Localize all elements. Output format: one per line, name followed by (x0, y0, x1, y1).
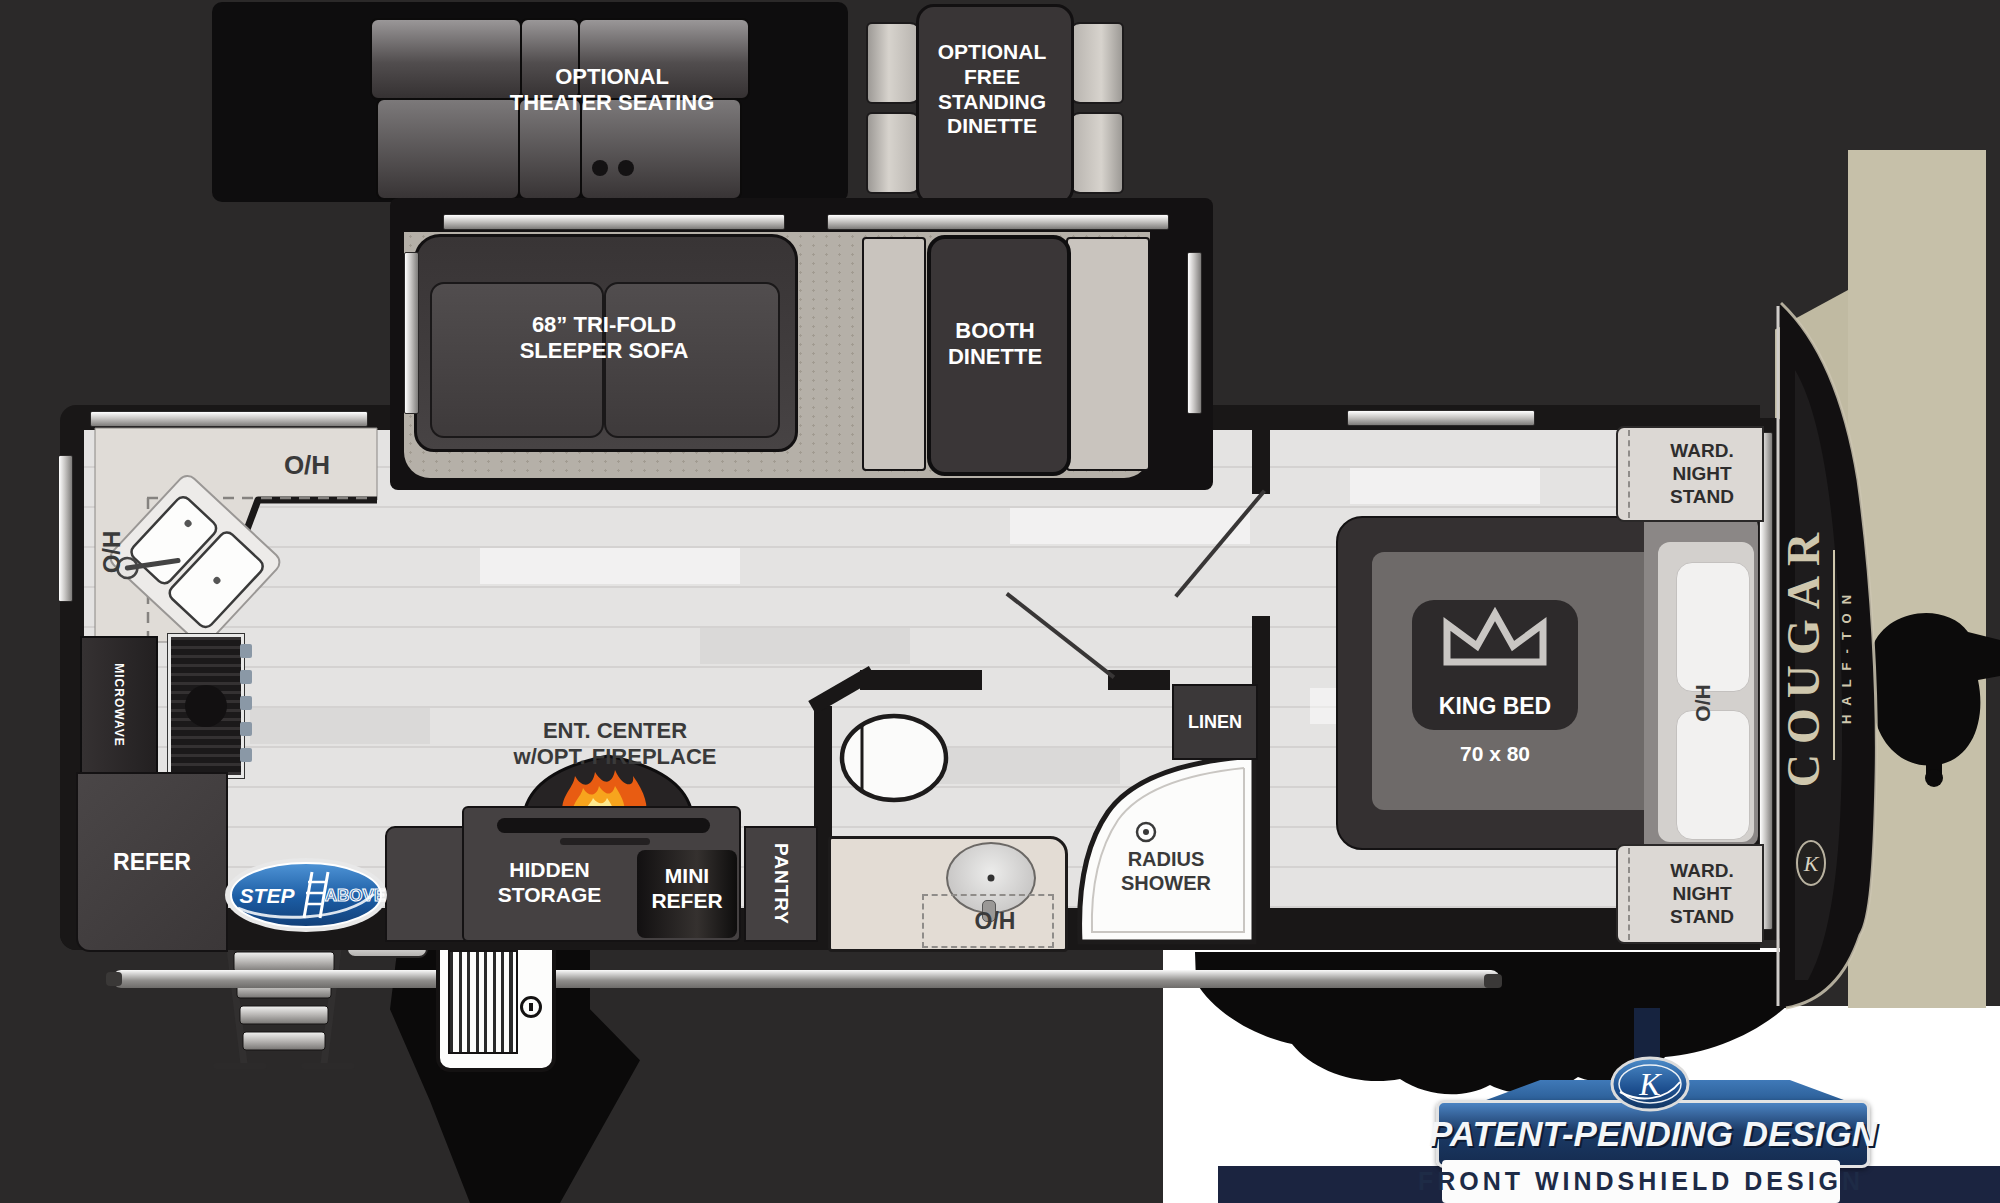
floor-plank-patch (1350, 468, 1540, 504)
vent-grill-icon (448, 950, 518, 1054)
dinette-chair (866, 22, 922, 104)
linen-closet: LINEN (1172, 684, 1258, 760)
floorplan-canvas: 68” TRI-FOLD SLEEPER SOFA BOOTH DINETTE … (0, 0, 2000, 1203)
sofa-label: 68” TRI-FOLD SLEEPER SOFA (424, 312, 784, 364)
mini-refer-label: MINI REFER (637, 864, 737, 914)
window-slide-left-side (404, 252, 419, 414)
keystone-logo-icon: K (1608, 1054, 1692, 1114)
toilet-icon (832, 708, 956, 808)
patent-banner-label: PATENT-PENDING DESIGN (1429, 1114, 1877, 1154)
dinette-chair (1068, 112, 1124, 194)
range-knobs (240, 644, 252, 762)
vent-lock-icon (520, 996, 542, 1018)
window-rear (58, 455, 73, 602)
keystone-emblem-icon: K (1793, 838, 1829, 888)
linen-label: LINEN (1188, 712, 1242, 733)
slide-rail-cap (106, 972, 122, 986)
floor-plank-patch (700, 628, 910, 664)
window-slide-right-top (827, 214, 1169, 230)
microwave-label: MICROWAVE (112, 663, 126, 746)
bath-overhead-label: O/H (950, 908, 1040, 935)
windshield-banner: FRONT WINDSHIELD DESIGN (1442, 1160, 1840, 1203)
booth-label: BOOTH DINETTE (927, 318, 1063, 370)
pantry-label: PANTRY (770, 843, 792, 925)
kitchen-overhead-label: O/H (252, 450, 362, 481)
theater-label: OPTIONAL THEATER SEATING (442, 64, 782, 116)
range-cooktop (168, 634, 244, 778)
windshield-banner-label: FRONT WINDSHIELD DESIGN (1418, 1167, 1864, 1196)
refrigerator-label: REFER (113, 849, 191, 876)
step-above-logo: STEP ABOVE (222, 856, 390, 934)
slide-rail-bar (112, 970, 1500, 988)
cup-holder-icon (592, 160, 608, 176)
dinette-chair (1068, 22, 1124, 104)
pantry-cabinet: PANTRY (744, 826, 818, 942)
burner-icon (185, 685, 227, 727)
ent-center-label: ENT. CENTER w/OPT. FIREPLACE (470, 718, 760, 770)
furnace-vent (436, 936, 556, 1072)
bath-wall-stub (1108, 670, 1170, 690)
kitchen-overhead-left-label: O/H (98, 502, 126, 602)
window-bedroom (1347, 410, 1535, 426)
bed-size-label: 70 x 80 (1412, 742, 1578, 767)
ent-cabinet-left (385, 826, 466, 942)
refrigerator: REFER (76, 772, 228, 952)
radius-shower (1068, 746, 1258, 948)
dinette-label: OPTIONAL FREE STANDING DINETTE (916, 40, 1068, 139)
cougar-trim-label: HALF-TON (1839, 586, 1854, 724)
booth-seat-left (862, 237, 926, 471)
window-kitchen (90, 411, 368, 427)
above-label: ABOVE (325, 886, 385, 905)
floor-plank-patch (480, 548, 740, 584)
floor-plank-patch (250, 708, 430, 744)
booth-seat-right (1066, 237, 1150, 471)
tv-shelf (560, 838, 650, 845)
bedroom-door-stub (1252, 428, 1270, 494)
window-slide-left-top (443, 214, 785, 230)
cougar-logo: COUGAR HALF-TON (1770, 445, 1860, 865)
svg-text:K: K (1803, 851, 1820, 876)
dinette-chair (866, 112, 922, 194)
cougar-divider (1833, 550, 1835, 760)
microwave: MICROWAVE (80, 636, 158, 774)
slide-rail-cap (1484, 974, 1502, 988)
window-slide-right-side (1187, 252, 1202, 414)
shower-drain-icon (1137, 823, 1155, 841)
tv-icon (497, 818, 710, 833)
svg-text:K: K (1638, 1066, 1662, 1102)
floor-plank-patch (1010, 508, 1250, 544)
hidden-storage-label: HIDDEN STORAGE (462, 858, 637, 908)
cougar-model-label: COUGAR (1777, 523, 1830, 787)
bed-overhead-label: O/H (1691, 653, 1717, 753)
bath-wall-top (860, 670, 982, 690)
entry-steps (208, 942, 360, 1078)
shower-label: RADIUS SHOWER (1100, 848, 1232, 895)
step-label: STEP (240, 884, 296, 907)
crown-icon (1437, 606, 1553, 668)
cup-holder-icon (618, 160, 634, 176)
